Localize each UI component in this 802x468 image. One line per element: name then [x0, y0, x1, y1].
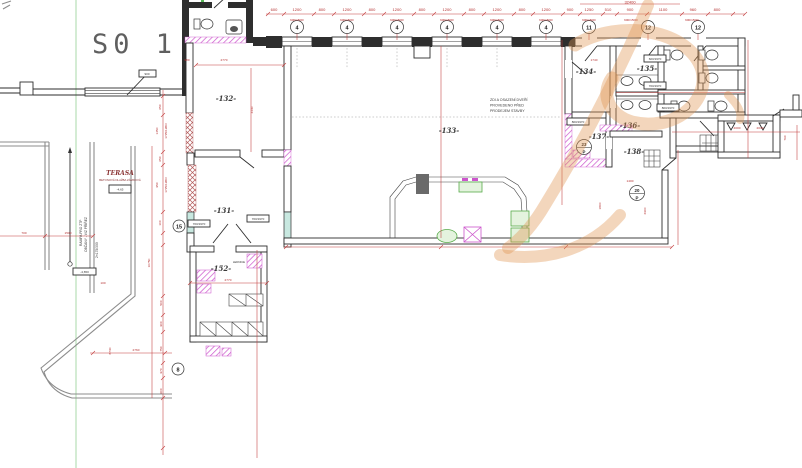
terasa-title: TERASA	[106, 170, 134, 177]
svg-text:950: 950	[155, 182, 159, 187]
furniture	[222, 348, 231, 356]
svg-text:800: 800	[319, 7, 326, 12]
svg-text:600/1500/: 600/1500/	[340, 18, 354, 22]
svg-text:700/1970: 700/1970	[193, 222, 206, 226]
svg-text:1200: 1200	[293, 7, 303, 12]
svg-text:1250: 1250	[585, 7, 595, 12]
svg-text:900: 900	[567, 7, 574, 12]
door-note-line3: PRODEJEM STAVBY	[490, 109, 525, 113]
svg-text:600/1500/: 600/1500/	[390, 18, 404, 22]
ramp-note-3: 2×175/300	[95, 242, 99, 258]
svg-text:100: 100	[100, 281, 105, 285]
marker-8: 8	[172, 363, 184, 375]
floor-plan-drawing: S0 1 900	[0, 0, 802, 468]
svg-text:1740: 1740	[591, 58, 598, 62]
svg-text:4430: 4430	[250, 106, 254, 113]
svg-text:2030: 2030	[757, 126, 764, 130]
room-label-131: -131-	[214, 206, 235, 215]
svg-text:500: 500	[159, 300, 163, 305]
svg-text:2760: 2760	[133, 348, 140, 352]
tables	[200, 294, 263, 336]
door-note-line1: ZDI A OSAZENÍ DVEŘÍ	[490, 97, 528, 102]
demolition-hatch	[188, 165, 196, 212]
terasa-elevation: -4,65	[117, 188, 124, 192]
svg-text:600/1500/: 600/1500/	[490, 18, 504, 22]
room-label-132: -132-	[216, 94, 237, 103]
room-label-152: -152-	[211, 264, 232, 273]
svg-text:1725/1980/: 1725/1980/	[164, 177, 168, 193]
svg-text:600/1500/: 600/1500/	[685, 18, 699, 22]
svg-text:800: 800	[519, 7, 526, 12]
ramp-note-1: RAMPA PRO ZTP	[79, 219, 83, 246]
elevation-low: -4,650	[80, 270, 89, 274]
svg-text:600/1500/: 600/1500/	[582, 18, 596, 22]
lednice-label: LEDNICE	[233, 260, 245, 264]
column	[416, 174, 429, 194]
round-table	[437, 230, 457, 243]
svg-text:10750: 10750	[147, 258, 151, 267]
svg-text:700: 700	[21, 231, 26, 235]
svg-text:20: 20	[635, 188, 640, 193]
svg-text:900: 900	[627, 7, 634, 12]
svg-text:1800: 1800	[598, 202, 602, 209]
urinal-icon	[226, 20, 242, 34]
svg-text:1400: 1400	[627, 179, 634, 183]
svg-text:600/1500/: 600/1500/	[290, 18, 304, 22]
svg-text:1200: 1200	[443, 7, 453, 12]
svg-text:750: 750	[159, 346, 163, 351]
svg-text:32400: 32400	[624, 0, 636, 5]
window-sill	[284, 212, 291, 238]
svg-text:8730: 8730	[108, 347, 112, 354]
svg-text:100: 100	[158, 220, 162, 225]
svg-text:1200: 1200	[493, 7, 503, 12]
svg-text:960: 960	[690, 7, 697, 12]
room-wc-topleft	[185, 0, 266, 46]
marker-15: 15	[173, 220, 185, 232]
sanitary-fixtures	[621, 50, 727, 111]
svg-text:970: 970	[159, 368, 163, 373]
floor-plan-canvas: S0 1 900	[0, 0, 802, 468]
room-label-135: -135-	[637, 64, 658, 73]
svg-text:800: 800	[714, 7, 721, 12]
svg-text:1200: 1200	[393, 7, 403, 12]
room-label-134: -134-	[576, 67, 597, 76]
shower-grid	[644, 150, 660, 167]
toilet-icon	[194, 19, 213, 29]
svg-text:P: P	[636, 196, 639, 201]
svg-text:8: 8	[176, 368, 179, 374]
ramp-note-2: OBČANY - VIZ PŘÍŘEZ	[83, 217, 88, 252]
axis-marker-4: 4 4 4 4 4 4	[291, 21, 553, 34]
svg-text:650: 650	[158, 156, 162, 161]
svg-text:2900: 2900	[643, 207, 647, 214]
svg-text:1200: 1200	[343, 7, 353, 12]
svg-text:800/1970: 800/1970	[572, 120, 585, 124]
svg-text:600/1500/: 600/1500/	[440, 18, 454, 22]
svg-text:760: 760	[783, 135, 787, 140]
svg-text:1450: 1450	[155, 127, 159, 134]
svg-text:1725/1980/: 1725/1980/	[164, 123, 168, 139]
svg-text:600/1500/: 600/1500/	[539, 18, 553, 22]
equipment-pink	[464, 227, 481, 242]
svg-text:700/1970: 700/1970	[252, 217, 265, 221]
dimension-lines	[0, 4, 800, 458]
svg-text:980: 980	[184, 58, 189, 62]
marker-20P: 20 P	[630, 186, 645, 201]
equipment-green	[459, 182, 482, 192]
svg-text:900: 900	[159, 321, 163, 326]
svg-text:510: 510	[605, 7, 612, 12]
svg-text:800: 800	[469, 7, 476, 12]
svg-text:15: 15	[176, 225, 182, 231]
svg-text:600/1970: 600/1970	[649, 57, 662, 61]
terasa-subtitle: BETONOVÁ DLAŽBA ZÁMKOVÁ	[99, 177, 141, 182]
svg-text:1500: 1500	[65, 231, 72, 235]
door-note-line2: PROVEDENO PŘED	[490, 103, 524, 108]
demolition-hatch	[186, 113, 193, 153]
svg-text:800/1970: 800/1970	[662, 106, 675, 110]
room-label-133: -133-	[439, 126, 460, 135]
room-s01: S0 1 900	[0, 0, 189, 96]
furniture	[206, 346, 220, 356]
svg-text:2000: 2000	[734, 126, 741, 130]
room-label-138: -138-	[624, 147, 645, 156]
svg-text:12: 12	[695, 26, 701, 32]
svg-text:2770: 2770	[225, 278, 232, 282]
svg-text:600: 600	[271, 7, 278, 12]
svg-text:800: 800	[369, 7, 376, 12]
building-label: S0 1	[92, 29, 177, 60]
svg-text:1100: 1100	[659, 7, 668, 12]
svg-text:800: 800	[419, 7, 426, 12]
svg-text:700/1970: 700/1970	[649, 84, 662, 88]
furniture	[197, 284, 211, 293]
svg-text:2770: 2770	[221, 58, 228, 62]
left-dimension-chain: 650 1450 1725/1980/ 650 950 1725/1980/ 1…	[155, 104, 168, 393]
new-wall-hatch	[185, 37, 246, 43]
bar-counter	[390, 174, 529, 243]
door-dim: 900	[144, 72, 149, 76]
fridge	[247, 254, 262, 268]
svg-text:1200: 1200	[542, 7, 552, 12]
svg-text:600: 600	[159, 388, 163, 393]
svg-text:650: 650	[158, 104, 162, 109]
